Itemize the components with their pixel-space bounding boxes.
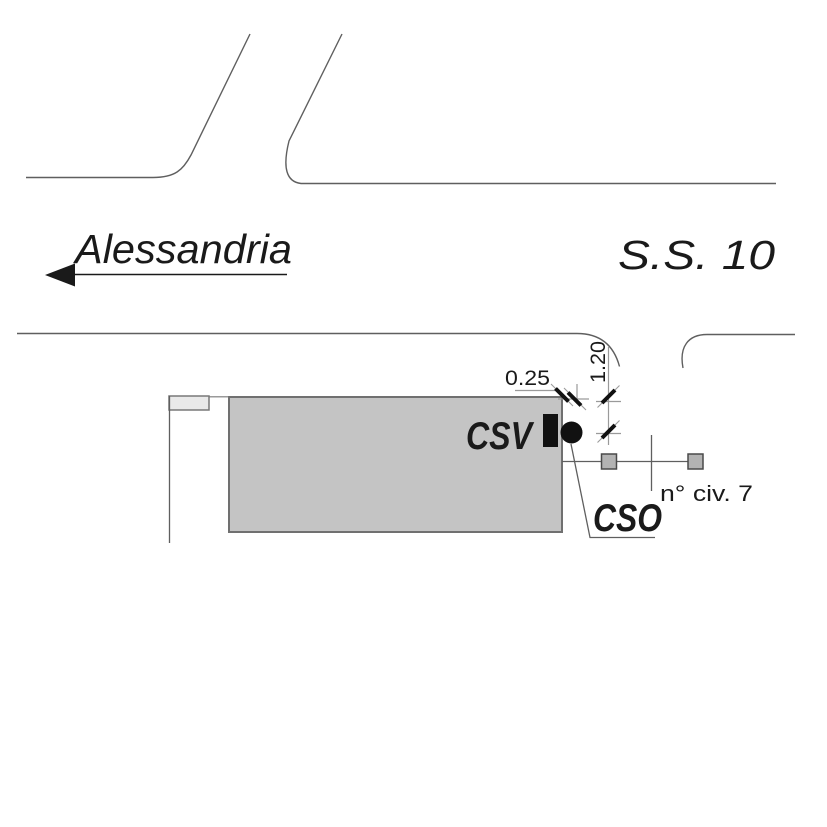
service-marker-icon — [602, 454, 617, 469]
dim-offset-label: 0.25 — [505, 367, 550, 390]
building-annex — [169, 396, 209, 410]
road-edge-lower-right — [682, 335, 795, 369]
road-edge-upper-left — [26, 34, 250, 178]
road-name-label: S.S. 10 — [618, 232, 775, 278]
cso-manhole-icon — [561, 422, 583, 444]
direction-label: Alessandria — [72, 226, 292, 272]
cso-label: CSO — [593, 497, 662, 540]
dim-depth-label: 1.20 — [587, 341, 610, 383]
csv-label: CSV — [466, 415, 534, 458]
road-edge-lower-left — [17, 334, 620, 367]
plan-drawing: Alessandria S.S. 10 0.25 1.20 CSV CSO n°… — [0, 0, 827, 827]
road-edge-upper-right — [286, 34, 776, 184]
civic-number-label: n° civ. 7 — [660, 481, 753, 506]
site-plan-sketch: Alessandria S.S. 10 0.25 1.20 CSV CSO n°… — [0, 0, 827, 827]
csv-valve-icon — [543, 414, 558, 447]
service-marker-icon — [688, 454, 703, 469]
direction-arrow-head-icon — [45, 264, 75, 287]
